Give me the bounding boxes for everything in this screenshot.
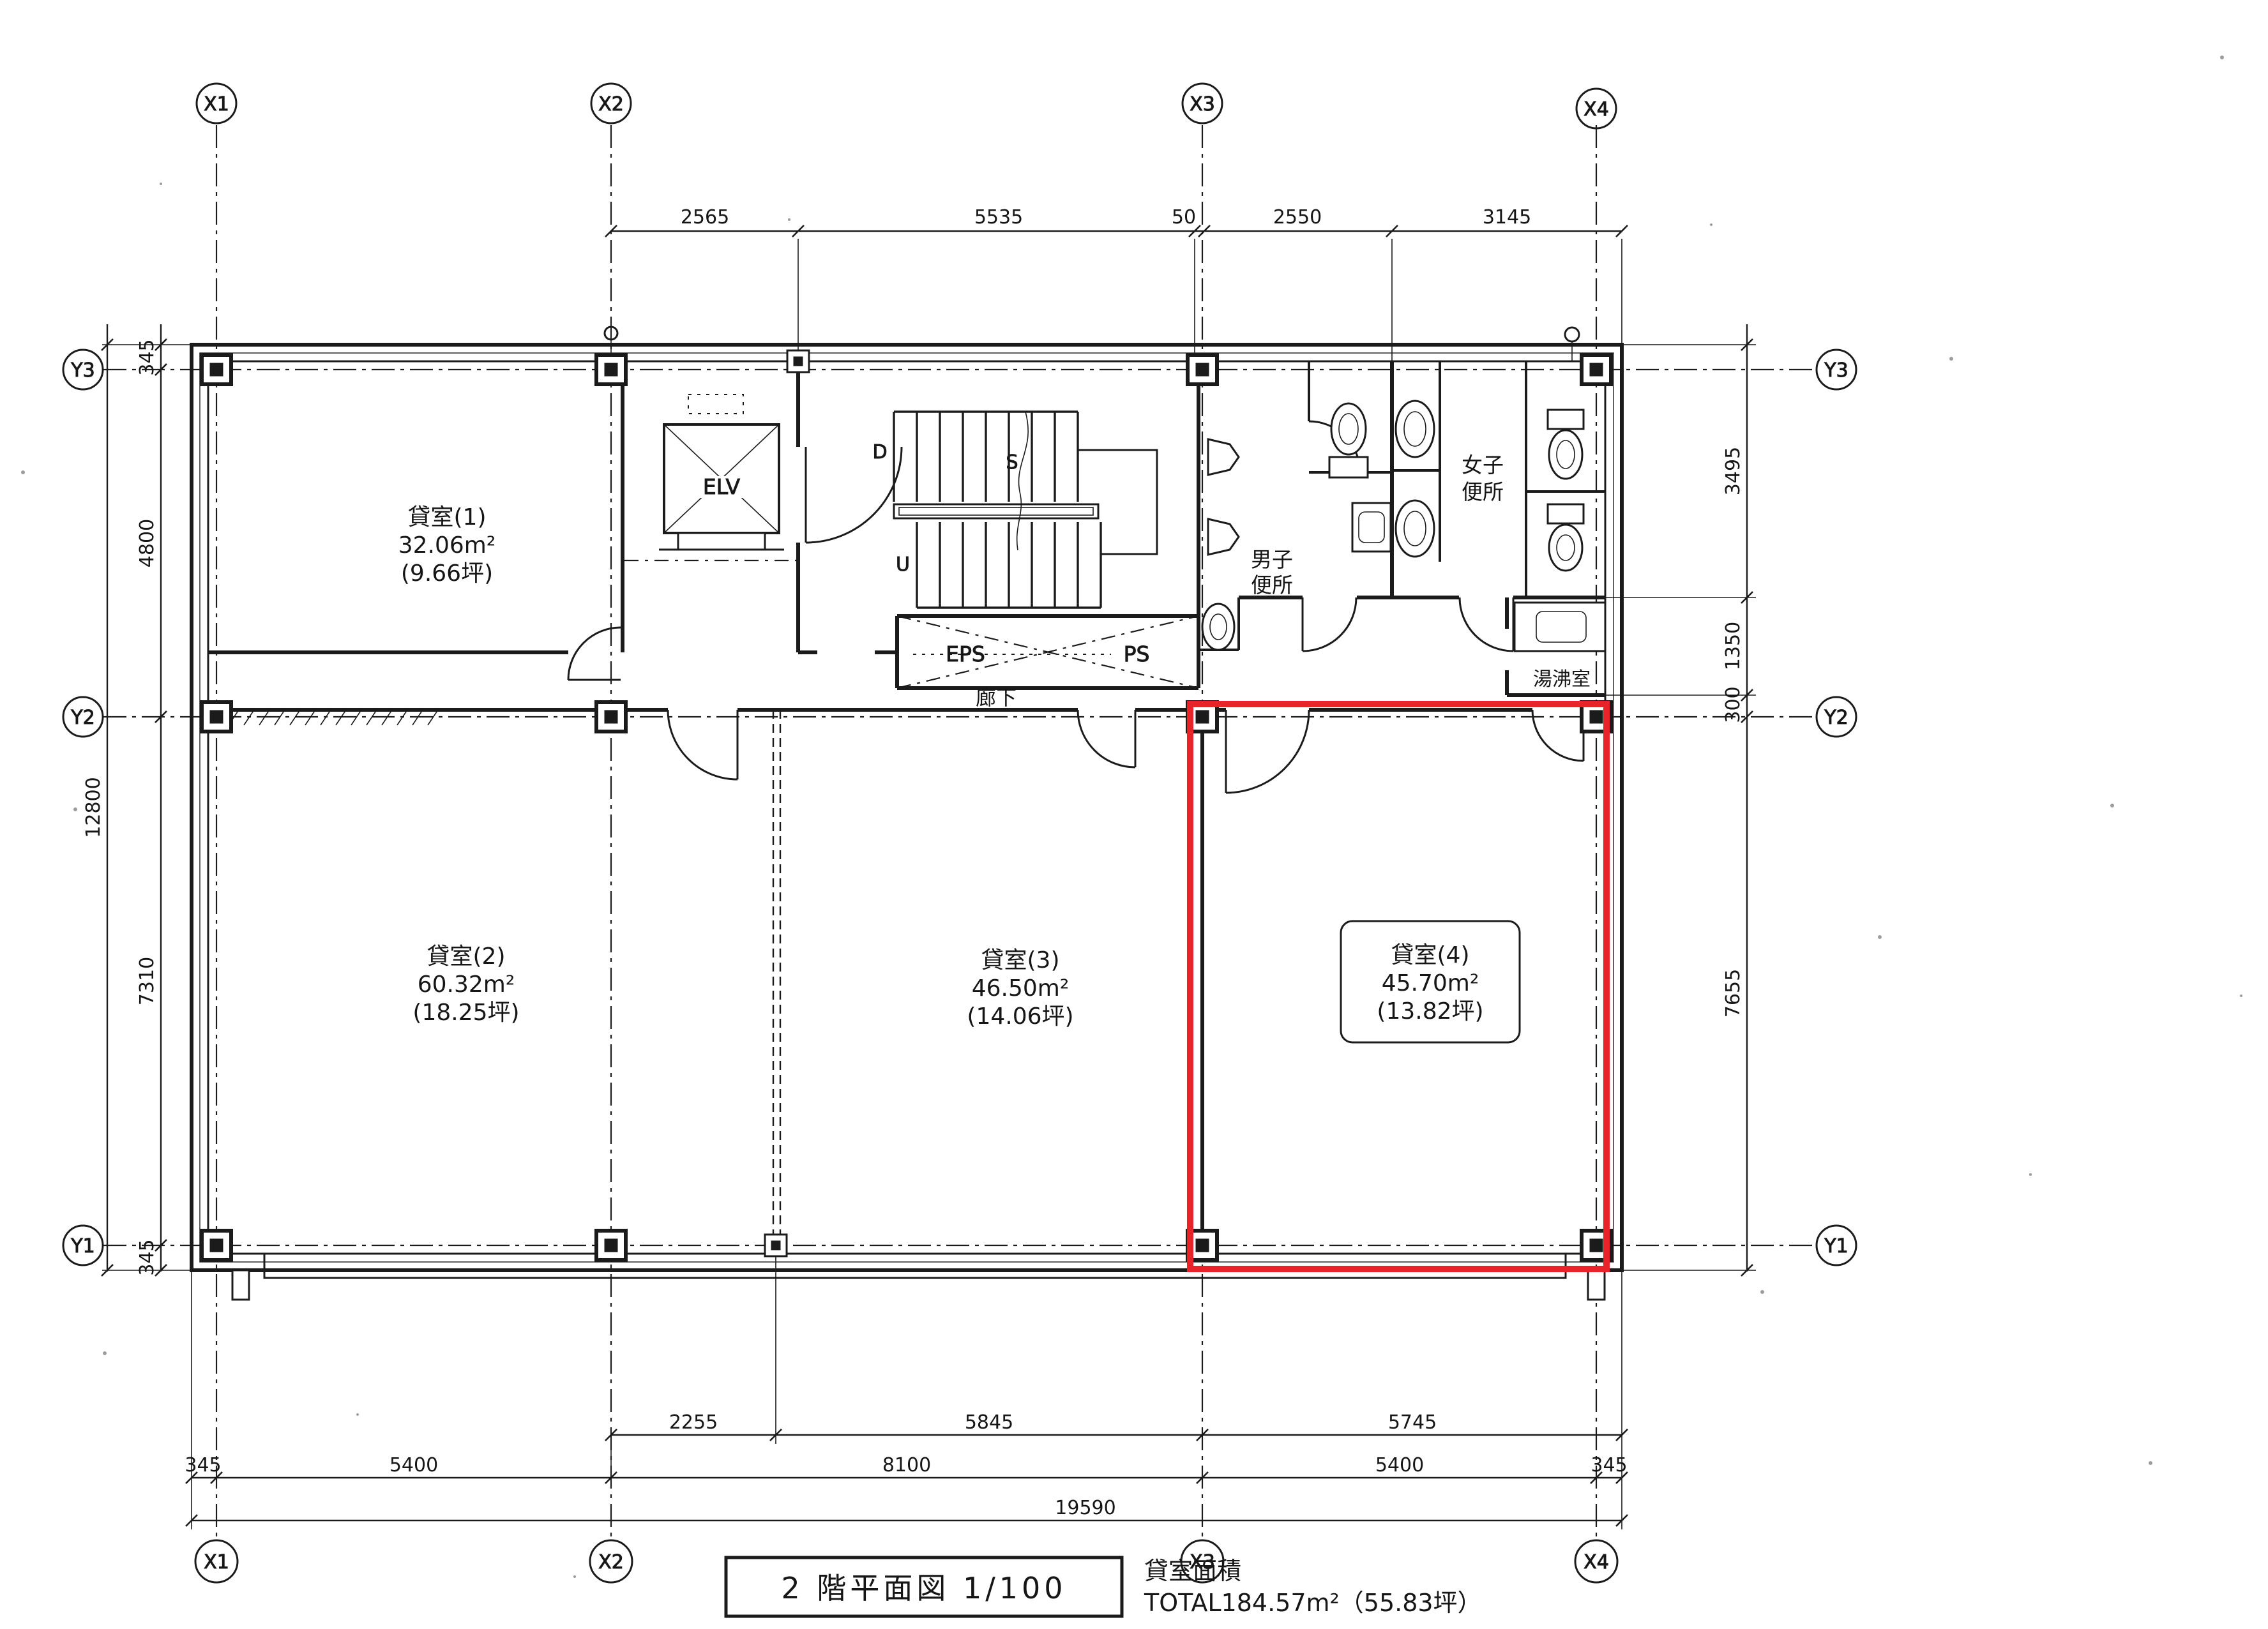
dim-right-1: 1350 [1722, 622, 1744, 670]
dim-bottom-inner-1: 5845 [965, 1411, 1013, 1434]
stair-landing [1078, 450, 1157, 554]
grid-bubble-x2-bottom: X2 [598, 1551, 624, 1573]
grid-bubble-y2-left: Y2 [70, 707, 94, 729]
area-summary-heading: 貸室面積 [1144, 1557, 1241, 1585]
dim-top-2: 50 [1172, 206, 1196, 229]
womens-label-2: 便所 [1462, 479, 1504, 504]
mens-label-1: 男子 [1251, 547, 1293, 572]
stair-rail-inner [899, 507, 1093, 515]
urinal-2 [1208, 519, 1239, 555]
interior-walls [208, 361, 1605, 1254]
room4-area: 45.70m² [1382, 970, 1479, 996]
dim-top-4: 3145 [1483, 206, 1531, 229]
kitchenette-label: 湯沸室 [1533, 668, 1591, 691]
mens-label-2: 便所 [1251, 573, 1293, 597]
dim-bottom-middle-1: 5400 [389, 1454, 438, 1476]
womens-wc-4 [1549, 525, 1582, 571]
stair-up-label: U [896, 553, 910, 576]
room1-area: 32.06m² [398, 532, 496, 559]
kitchenette-counter [1515, 603, 1605, 651]
mens-sink [1352, 503, 1391, 552]
exterior-wall-outer [192, 345, 1622, 1270]
elevator-sill [678, 533, 765, 550]
building-shell [192, 327, 1622, 1300]
area-summary-total: TOTAL184.57m²（55.83坪） [1144, 1589, 1482, 1617]
stair-mid-label: S [1006, 451, 1018, 474]
sanitary-fixtures [1202, 401, 1605, 651]
dim-bottom-middle-4: 345 [1591, 1454, 1627, 1476]
dim-top-1: 5535 [974, 206, 1023, 229]
dim-bottom-middle-2: 8100 [882, 1454, 931, 1476]
column [1188, 355, 1217, 384]
column [202, 355, 231, 384]
stair-down-label: D [872, 441, 887, 463]
dim-bottom-inner-2: 5745 [1388, 1411, 1437, 1434]
column-small [765, 1235, 787, 1256]
room4-tsubo: (13.82坪) [1377, 998, 1483, 1025]
room-labels: 貸室(1) 32.06m² (9.66坪) 貸室(2) 60.32m² (18.… [398, 504, 1520, 1042]
column [202, 702, 231, 732]
room4-name: 貸室(4) [1391, 942, 1470, 968]
room3-tsubo: (14.06坪) [967, 1003, 1073, 1030]
room1-name: 貸室(1) [408, 504, 487, 530]
column [596, 1231, 626, 1260]
elevator-label: ELV [703, 474, 741, 499]
dim-left-1: 4800 [136, 519, 158, 567]
mens-toilet-door [1303, 597, 1356, 651]
womens-wc-3-tank [1548, 410, 1584, 429]
elevator: ELV [624, 394, 797, 560]
column [1582, 355, 1611, 384]
womens-wc-4-tank [1548, 504, 1584, 523]
dim-right-2: 300 [1722, 686, 1744, 723]
elevator-counterweight [688, 394, 743, 414]
scan-noise [21, 56, 2242, 1578]
grid-bubble-x1-bottom: X1 [204, 1551, 229, 1573]
downspout-left [232, 1270, 249, 1300]
dim-bottom-middle-0: 345 [185, 1454, 221, 1476]
womens-wc-1 [1396, 401, 1434, 457]
dimension-texts: 2565 5535 50 2550 3145 2255 5845 5745 34… [82, 206, 1744, 1519]
grid-bubble-x3-top: X3 [1190, 93, 1215, 116]
dim-bottom-overall: 19590 [1055, 1497, 1115, 1519]
ps-label: PS [1124, 642, 1150, 666]
grid-bubble-y2-right: Y2 [1824, 707, 1848, 729]
eps-cross [897, 616, 1198, 688]
stair-lower-treads [917, 522, 1101, 608]
stair-break-line [1017, 412, 1029, 550]
dim-right-3: 7655 [1722, 969, 1744, 1017]
grid-bubble-y3-left: Y3 [70, 359, 94, 382]
womens-wc-3 [1549, 430, 1582, 479]
dim-left-overall: 12800 [82, 777, 105, 837]
mens-wc-1-tank [1329, 457, 1368, 477]
columns [202, 350, 1611, 1260]
window-midline [200, 353, 1614, 1262]
room4-door [1226, 710, 1309, 793]
floor-plan-canvas: ELV D S U EPS PS [0, 0, 2268, 1629]
room3-name: 貸室(3) [981, 947, 1060, 973]
grid-bubble-x4-bottom: X4 [1584, 1551, 1609, 1573]
wall-hatch [213, 710, 438, 725]
room2-room3-partition [773, 710, 780, 1254]
column [596, 702, 626, 732]
stairs: D S U [872, 412, 1157, 608]
room1-door [568, 627, 621, 680]
wall-marker-circle-x4 [1565, 327, 1579, 342]
exterior-wall-inner [208, 361, 1605, 1254]
dim-top-0: 2565 [681, 206, 729, 229]
stair-upper-treads [894, 412, 1078, 502]
dimension-lines [102, 225, 1756, 1529]
drawing-title: 2 階平面図 1/100 [781, 1571, 1066, 1605]
grid-lines [103, 125, 1816, 1537]
room1-tsubo: (9.66坪) [401, 560, 493, 587]
dim-left-3: 345 [136, 1239, 158, 1275]
room2-name: 貸室(2) [427, 943, 506, 970]
grid-bubble-y1-left: Y1 [70, 1235, 94, 1257]
urinal-1 [1208, 439, 1239, 475]
mens-wc-1 [1331, 403, 1366, 454]
dim-left-0: 345 [136, 339, 158, 375]
dim-top-3: 2550 [1273, 206, 1322, 229]
dim-right-0: 3495 [1722, 447, 1744, 495]
room2-door [668, 710, 737, 779]
dim-bottom-inner-0: 2255 [669, 1411, 718, 1434]
column-small [787, 350, 809, 372]
grid-bubble-y3-right: Y3 [1824, 359, 1848, 382]
room3-door [1078, 710, 1135, 767]
room2-tsubo: (18.25坪) [412, 1000, 519, 1026]
grid-bubble-x4-top: X4 [1584, 98, 1609, 121]
column [596, 355, 626, 384]
dim-left-2: 7310 [136, 957, 158, 1005]
mens-wc-2 [1202, 604, 1234, 650]
eps-ps-shaft: EPS PS [897, 616, 1198, 688]
room2-area: 60.32m² [418, 972, 515, 998]
title-block: 2 階平面図 1/100 貸室面積 TOTAL184.57m²（55.83坪） [726, 1557, 1482, 1617]
room3-area: 46.50m² [972, 975, 1070, 1002]
grid-bubble-y1-right: Y1 [1824, 1235, 1848, 1257]
grid-bubble-x2-top: X2 [598, 93, 624, 116]
womens-label-1: 女子 [1462, 453, 1504, 477]
eps-label: EPS [946, 642, 985, 666]
column [202, 1231, 231, 1260]
womens-wc-2 [1396, 500, 1434, 557]
stair-rail [894, 504, 1098, 518]
downspout-right [1588, 1270, 1605, 1300]
grid-bubble-x1-top: X1 [204, 93, 229, 116]
corridor-label: 廊下 [976, 686, 1017, 710]
dim-bottom-middle-3: 5400 [1375, 1454, 1424, 1476]
grid-bubbles: X1 X2 X3 X4 X1 X2 X3 X4 Y3 Y2 Y1 Y3 Y2 Y… [63, 84, 1856, 1582]
service-labels: 廊下 男子 便所 女子 便所 湯沸室 [976, 453, 1591, 710]
